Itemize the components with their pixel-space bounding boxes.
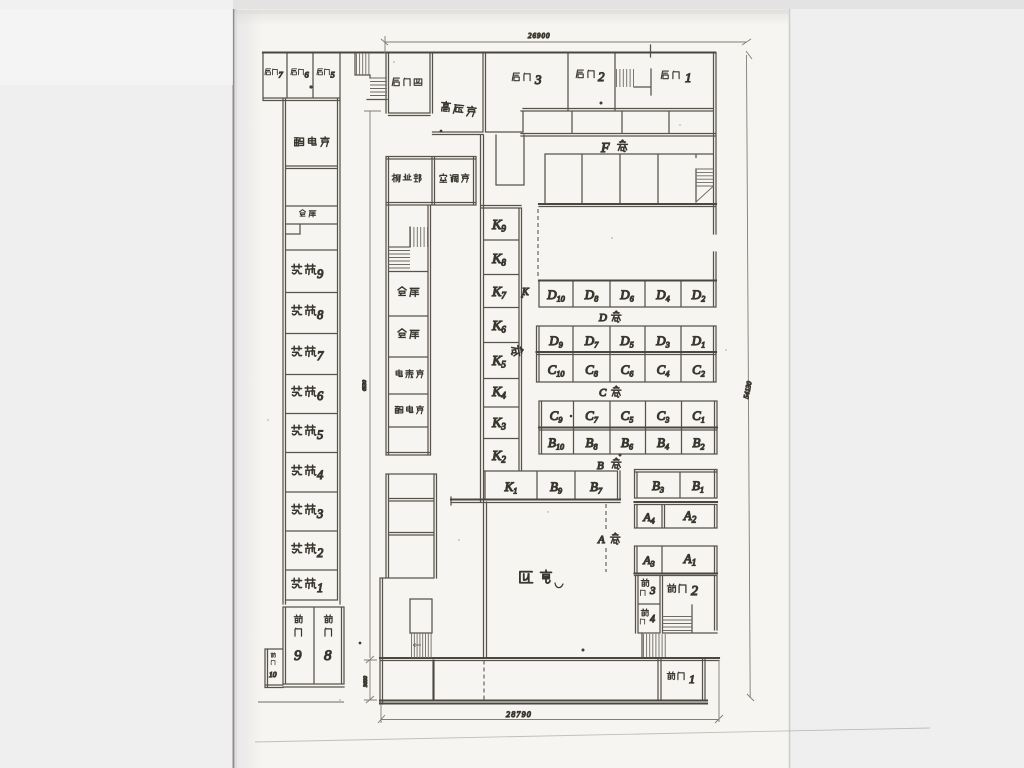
svg-text:26900: 26900	[528, 32, 551, 40]
svg-text:9: 9	[317, 267, 324, 281]
svg-text:3600: 3600	[363, 676, 369, 688]
svg-text:10: 10	[269, 670, 277, 679]
svg-text:8: 8	[324, 648, 332, 664]
svg-text:4: 4	[650, 614, 655, 625]
svg-text:2: 2	[691, 584, 698, 599]
svg-text:3: 3	[534, 72, 542, 87]
svg-text:2: 2	[317, 546, 323, 560]
svg-text:7: 7	[317, 349, 324, 363]
svg-text:A: A	[597, 534, 605, 546]
svg-text:9: 9	[294, 648, 302, 664]
svg-text:3: 3	[316, 507, 323, 521]
svg-text:1: 1	[685, 70, 692, 85]
svg-text:8: 8	[317, 308, 324, 322]
svg-text:C: C	[599, 387, 607, 399]
svg-text:B: B	[597, 460, 604, 472]
svg-text:5: 5	[317, 428, 323, 442]
svg-text:3: 3	[649, 585, 656, 597]
svg-text:5: 5	[331, 70, 335, 80]
svg-text:6530: 6530	[362, 380, 368, 391]
svg-text:F: F	[600, 141, 610, 156]
svg-text:2: 2	[598, 69, 605, 84]
svg-text:6: 6	[317, 389, 324, 403]
svg-text:4: 4	[317, 468, 323, 482]
svg-text:D: D	[598, 312, 607, 324]
svg-text:1: 1	[317, 581, 323, 595]
svg-text:28790: 28790	[506, 710, 532, 719]
svg-text:1: 1	[689, 672, 695, 686]
